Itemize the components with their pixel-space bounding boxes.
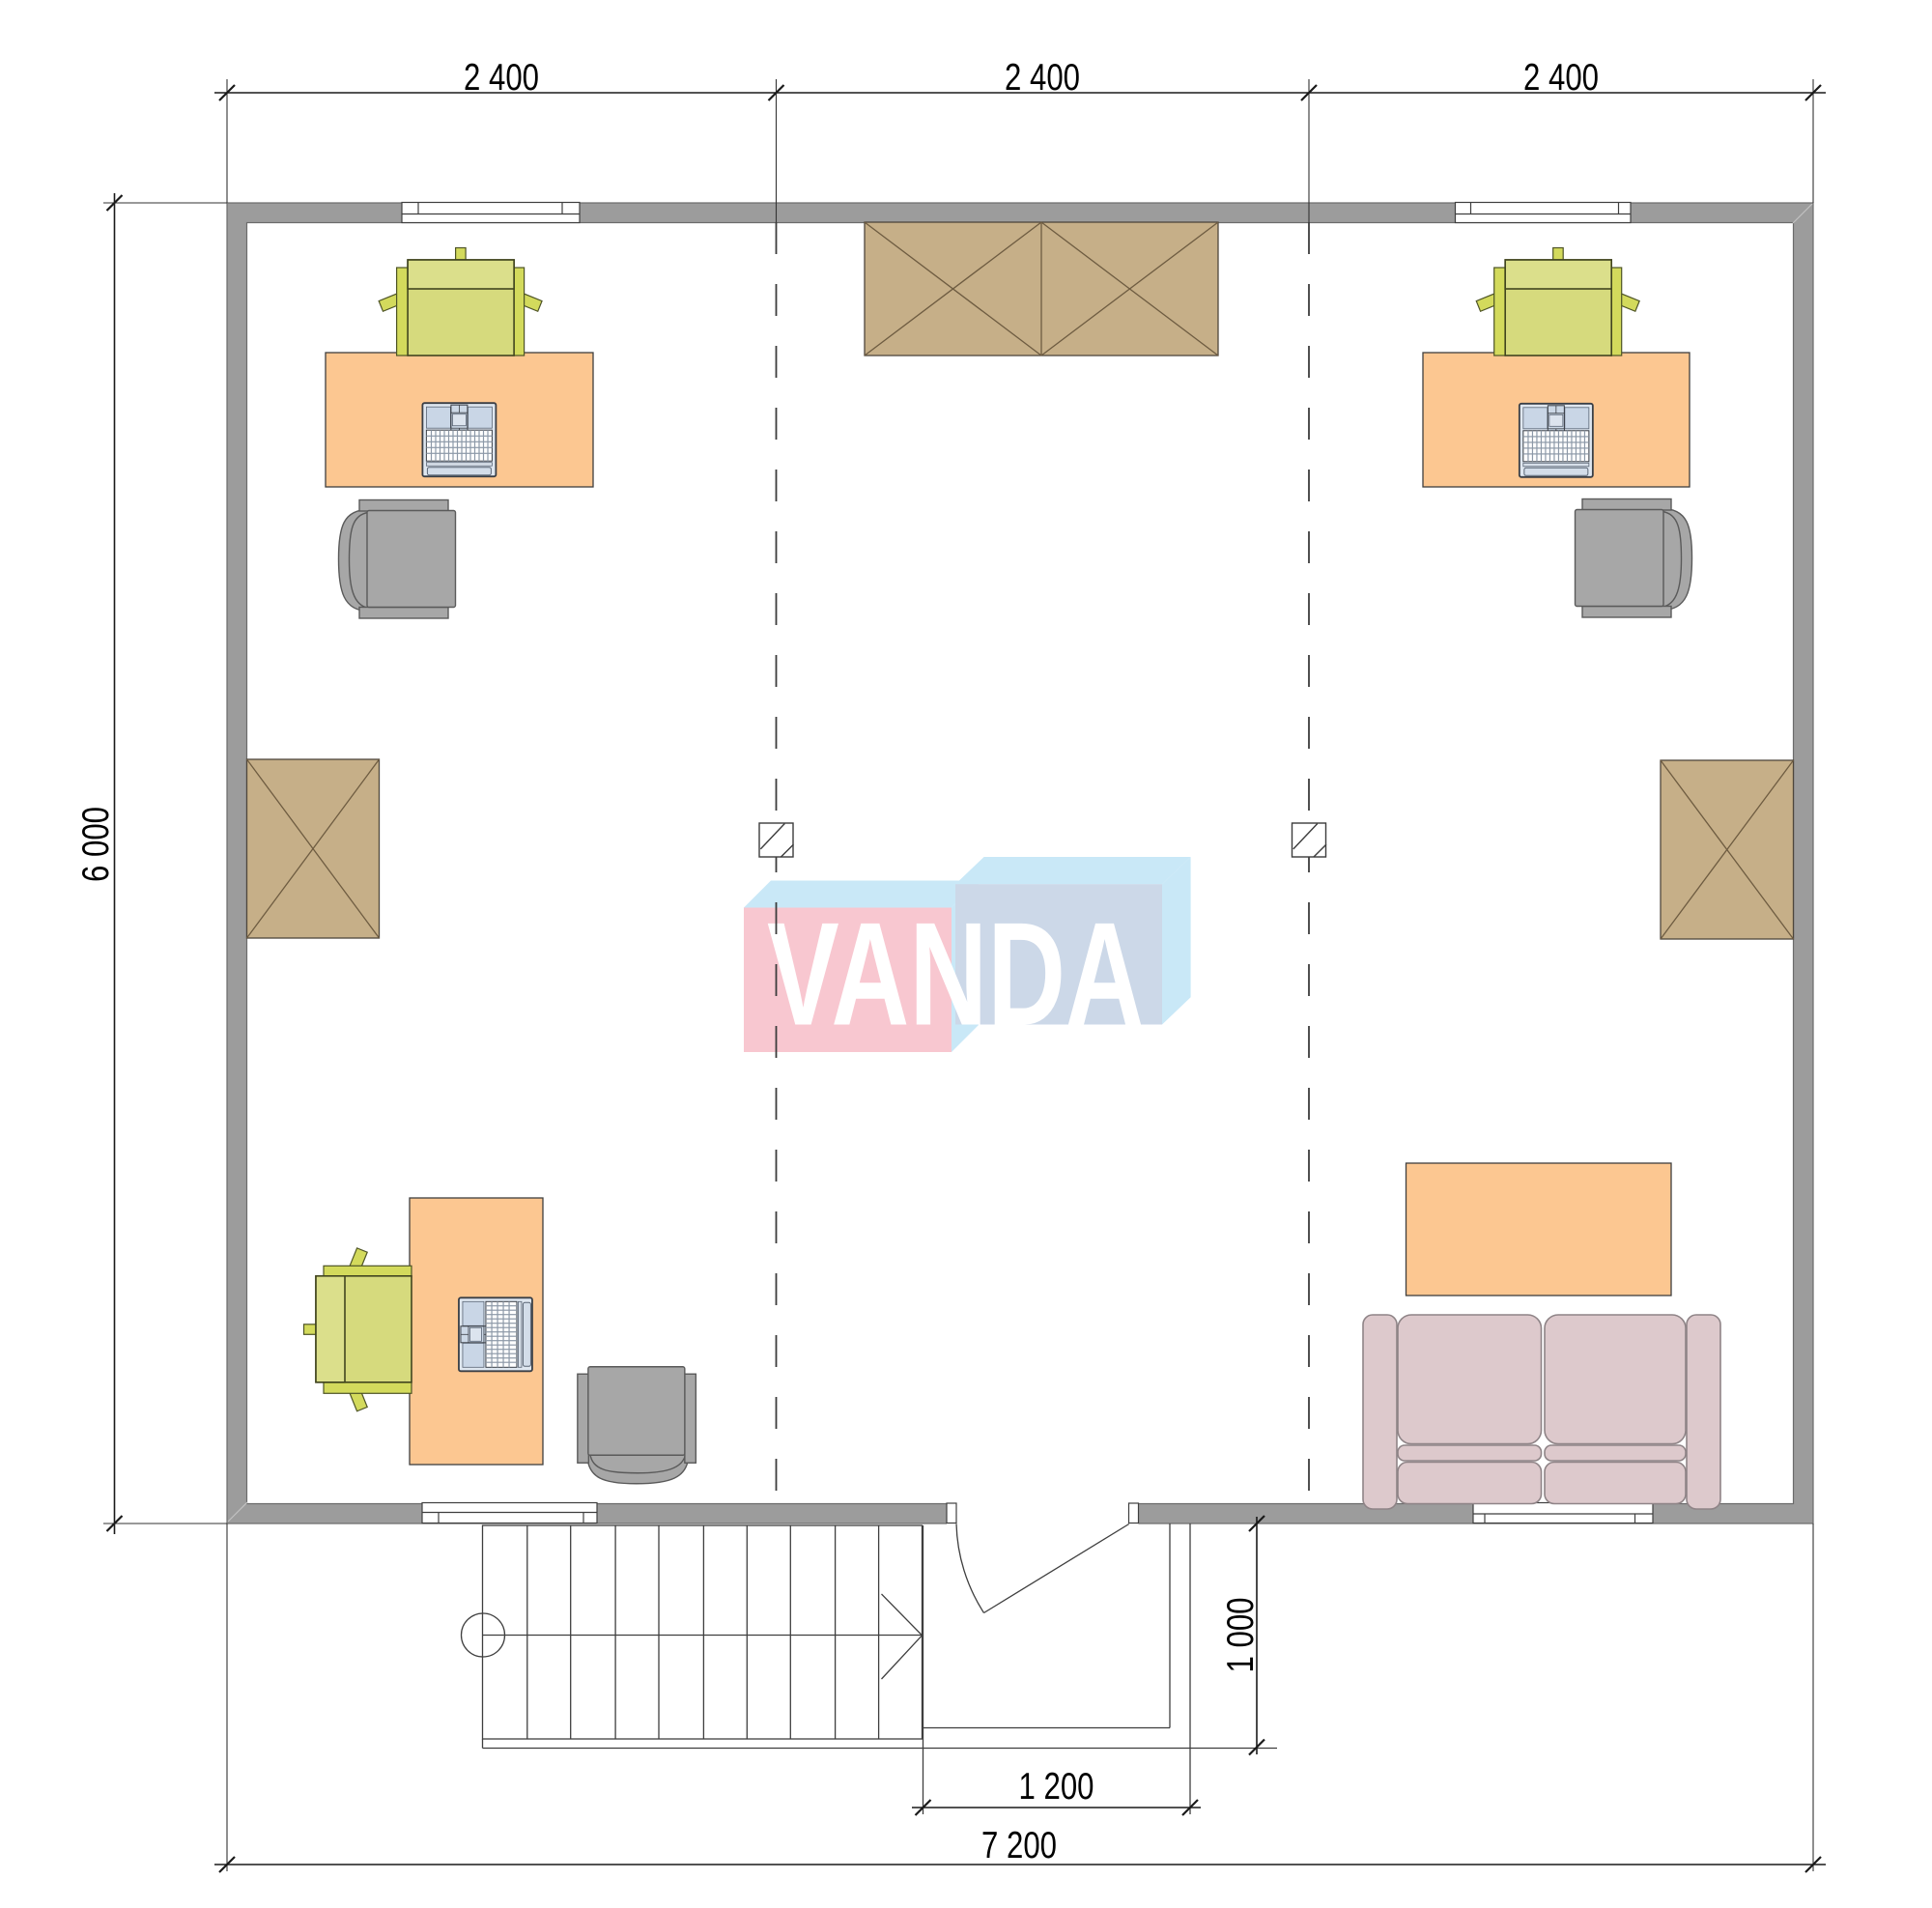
svg-text:1 000: 1 000 <box>1220 1598 1262 1673</box>
svg-text:2 400: 2 400 <box>464 57 539 99</box>
svg-text:VANDA: VANDA <box>767 893 1144 1057</box>
svg-text:2 400: 2 400 <box>1005 57 1080 99</box>
svg-text:2 400: 2 400 <box>1523 57 1599 99</box>
svg-text:7 200: 7 200 <box>981 1825 1057 1866</box>
svg-text:6 000: 6 000 <box>75 807 117 882</box>
svg-text:1 200: 1 200 <box>1019 1766 1094 1808</box>
